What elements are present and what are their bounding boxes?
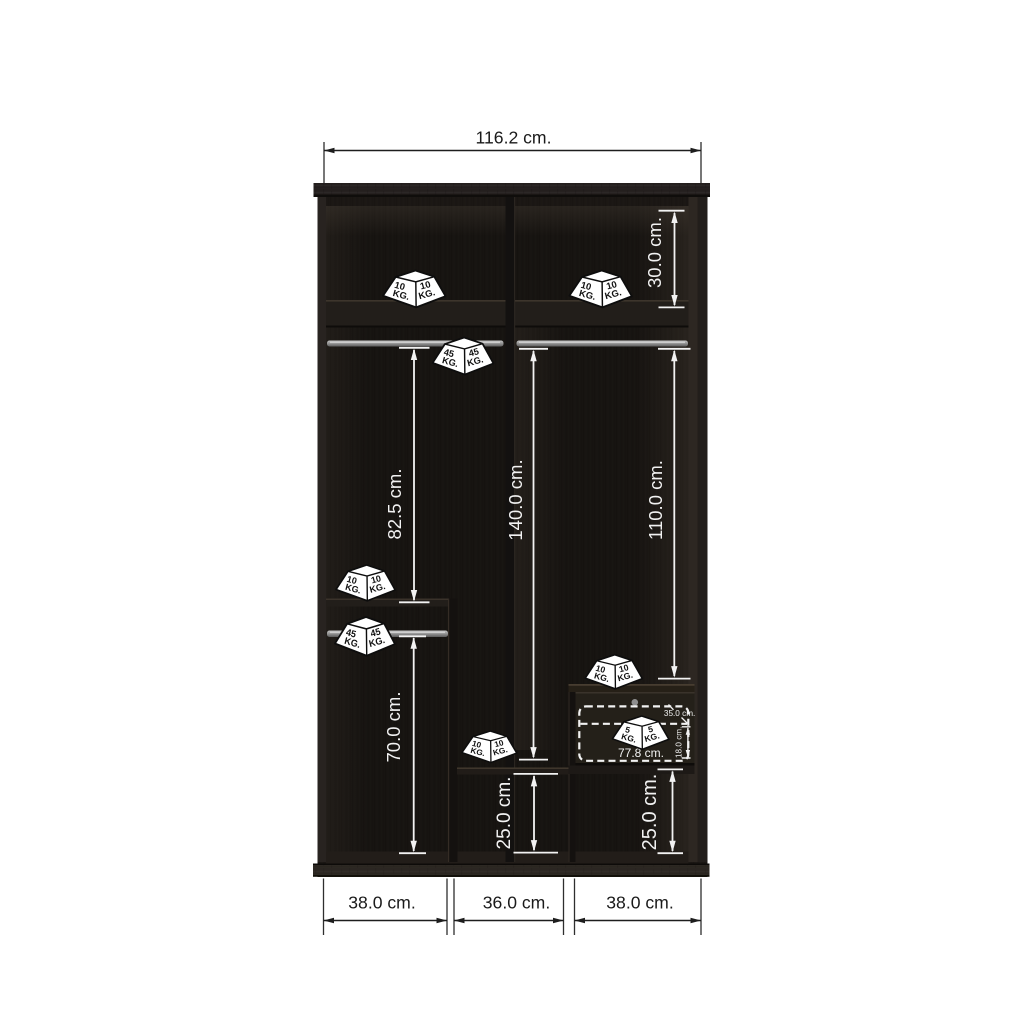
svg-text:116.2 cm.: 116.2 cm. bbox=[476, 128, 552, 148]
svg-text:110.0 cm.: 110.0 cm. bbox=[645, 460, 666, 540]
svg-text:82.5 cm.: 82.5 cm. bbox=[384, 469, 405, 540]
svg-text:18.0 cm.: 18.0 cm. bbox=[674, 727, 683, 758]
svg-text:36.0 cm.: 36.0 cm. bbox=[483, 893, 550, 913]
svg-text:25.0 cm.: 25.0 cm. bbox=[639, 774, 661, 851]
svg-text:70.0 cm.: 70.0 cm. bbox=[383, 692, 404, 763]
svg-text:140.0 cm.: 140.0 cm. bbox=[505, 459, 526, 540]
svg-text:35.0 cm.: 35.0 cm. bbox=[664, 709, 695, 718]
svg-text:30.0 cm.: 30.0 cm. bbox=[644, 217, 665, 288]
svg-text:38.0 cm.: 38.0 cm. bbox=[606, 893, 673, 913]
svg-text:38.0 cm.: 38.0 cm. bbox=[348, 893, 415, 913]
svg-text:25.0 cm.: 25.0 cm. bbox=[494, 777, 515, 850]
